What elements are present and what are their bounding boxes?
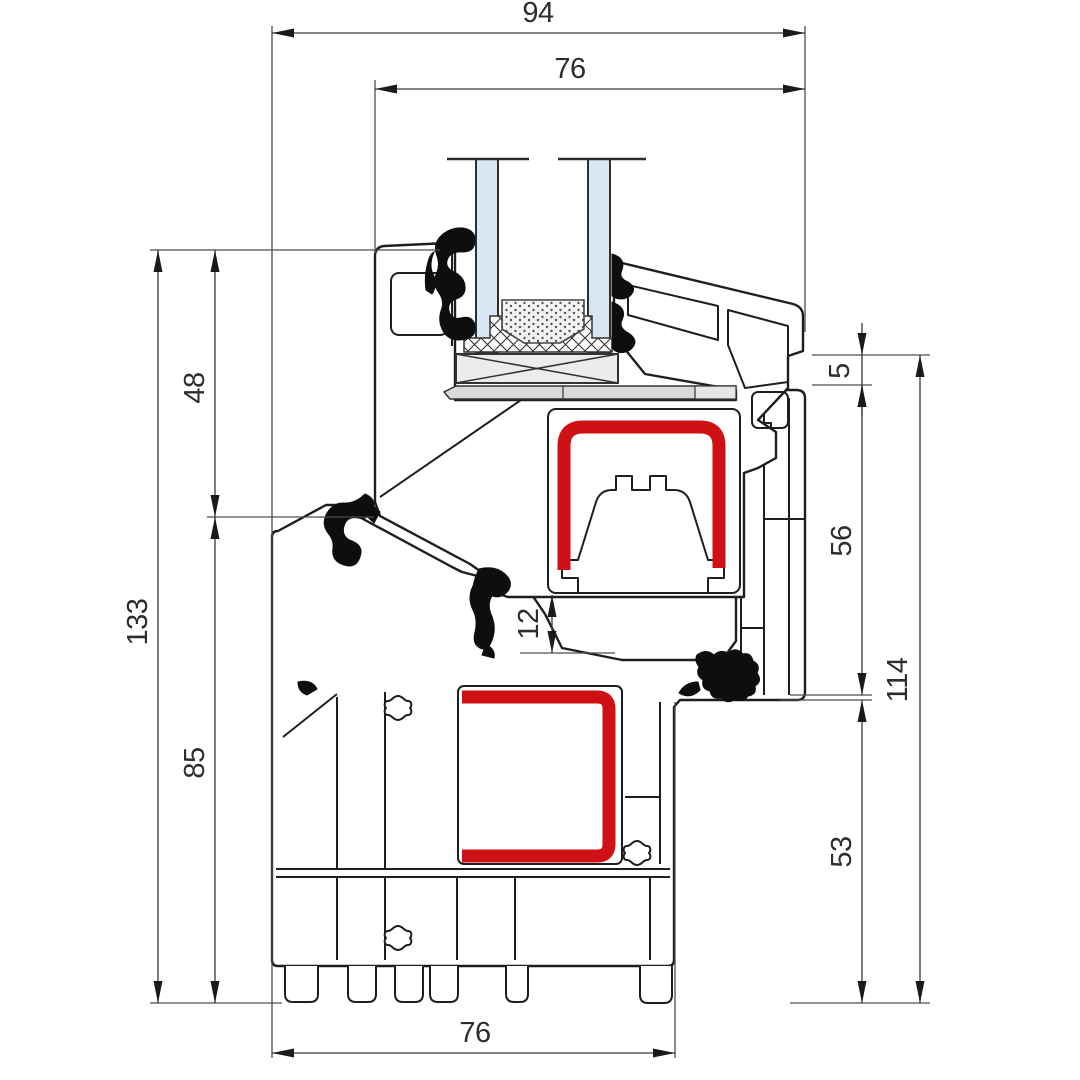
dimension-height-rebate-right: 56 xyxy=(826,385,867,695)
dimension-width-sash: 76 xyxy=(375,53,805,94)
dimension-height-frame-left: 85 xyxy=(179,517,220,1003)
dimension-width-frame-bottom: 76 xyxy=(272,1017,675,1058)
dimension-height-base-right: 53 xyxy=(826,700,867,1003)
technical-drawing-page: 94761334885125565311476 xyxy=(0,0,1080,1080)
svg-text:48: 48 xyxy=(179,372,211,403)
spacer-bar xyxy=(502,300,584,343)
dimension-height-total-left: 133 xyxy=(122,250,163,1003)
svg-text:133: 133 xyxy=(122,599,154,646)
packer-strip xyxy=(444,386,736,399)
svg-text:76: 76 xyxy=(554,53,585,85)
window-profile-section-drawing: 94761334885125565311476 xyxy=(0,0,1080,1080)
svg-text:76: 76 xyxy=(459,1017,490,1049)
dimension-width-total: 94 xyxy=(272,0,805,38)
svg-text:53: 53 xyxy=(826,836,858,867)
glazing-block xyxy=(456,354,618,383)
glazing-gasket-left xyxy=(435,228,475,340)
svg-text:56: 56 xyxy=(826,525,858,556)
svg-text:114: 114 xyxy=(882,657,914,702)
svg-text:5: 5 xyxy=(824,363,856,379)
svg-text:12: 12 xyxy=(513,608,545,639)
svg-text:94: 94 xyxy=(522,0,554,29)
dimension-height-sash-left: 48 xyxy=(179,250,220,517)
dimension-height-frame-right: 114 xyxy=(882,355,925,1003)
frame-feet xyxy=(285,966,672,1003)
svg-text:85: 85 xyxy=(179,747,211,778)
